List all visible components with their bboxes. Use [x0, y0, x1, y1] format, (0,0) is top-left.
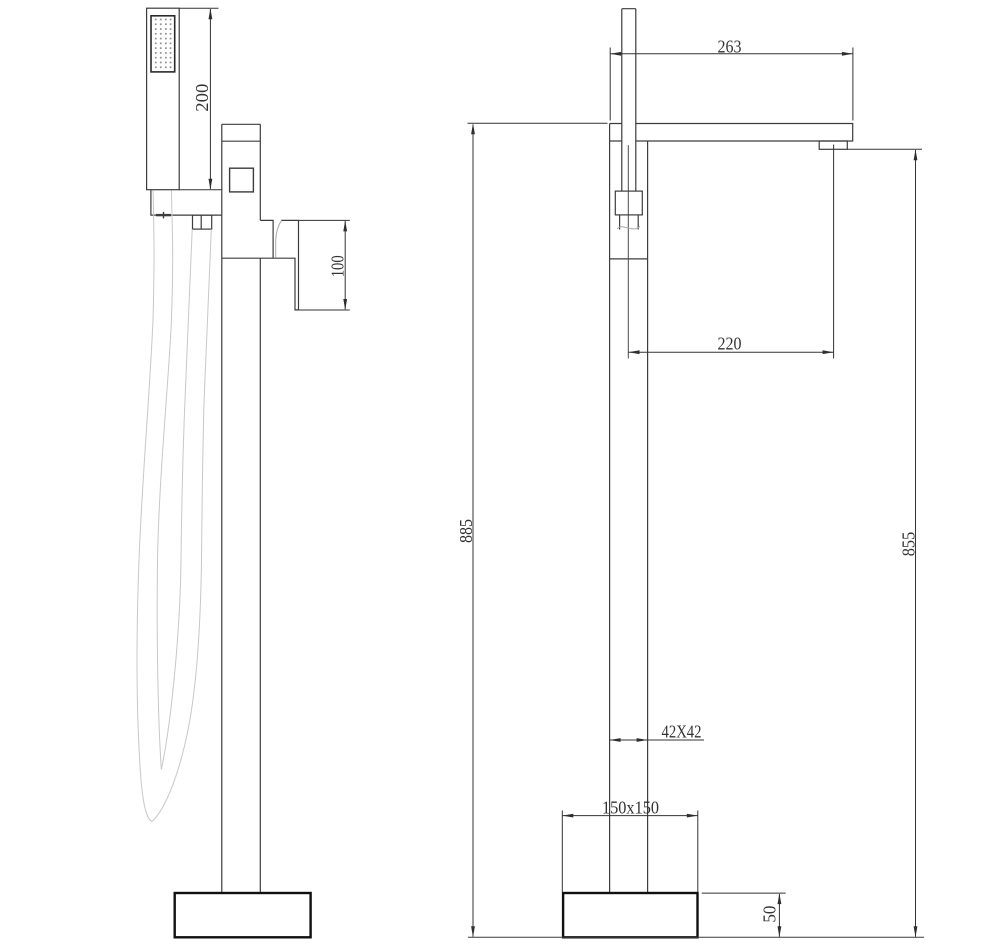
svg-text:855: 855 — [899, 532, 919, 557]
svg-text:150x150: 150x150 — [602, 797, 659, 817]
svg-text:885: 885 — [456, 519, 476, 543]
svg-text:100: 100 — [328, 255, 348, 277]
svg-text:50: 50 — [760, 906, 780, 923]
svg-text:200: 200 — [192, 84, 212, 112]
svg-text:220: 220 — [718, 334, 742, 354]
svg-text:263: 263 — [718, 36, 742, 56]
svg-text:42X42: 42X42 — [662, 722, 702, 742]
